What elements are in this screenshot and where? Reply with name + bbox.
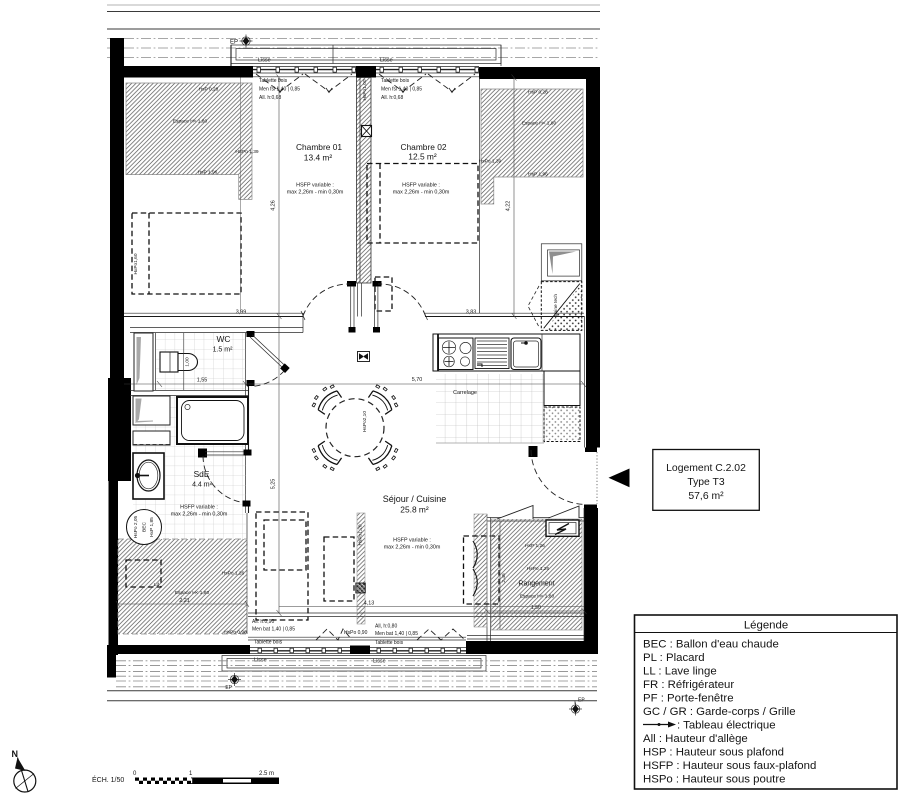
svg-text:HSFP : Hauteur sous faux-plafo: HSFP : Hauteur sous faux-plafond	[643, 760, 816, 772]
svg-text:1,55: 1,55	[197, 378, 208, 384]
svg-text:HsPo 0,90: HsPo 0,90	[344, 630, 368, 636]
svg-text:max 2,26m - min 0,30m: max 2,26m - min 0,30m	[171, 512, 228, 518]
svg-text:LL : Lave linge: LL : Lave linge	[643, 666, 717, 678]
svg-text:BEC: BEC	[142, 522, 148, 532]
svg-text:4,26: 4,26	[271, 200, 277, 211]
svg-text:HsP 0,28: HsP 0,28	[528, 90, 548, 96]
svg-text:HsPo 1,26: HsPo 1,26	[222, 571, 245, 577]
svg-text:BEC : Ballon d'eau chaude: BEC : Ballon d'eau chaude	[643, 639, 779, 651]
svg-text:Chambre 02: Chambre 02	[400, 142, 446, 152]
svg-text:Logement C.2.02: Logement C.2.02	[666, 463, 746, 474]
svg-text:gaine tech: gaine tech	[553, 294, 559, 316]
svg-text:3,83: 3,83	[466, 310, 477, 316]
svg-text:max 2,26m - min 0,30m: max 2,26m - min 0,30m	[287, 190, 344, 196]
svg-text:Espace H< 1,80: Espace H< 1,80	[175, 590, 210, 596]
svg-text:HsPo1,20: HsPo1,20	[358, 524, 364, 545]
svg-text:2,45: 2,45	[501, 573, 507, 583]
svg-text:4,13: 4,13	[364, 601, 375, 607]
svg-text:Ld: Ld	[154, 582, 160, 588]
svg-text:PF : Porte-fenêtre: PF : Porte-fenêtre	[643, 693, 734, 705]
svg-text:4.4 m²: 4.4 m²	[192, 482, 213, 489]
svg-text:5,25: 5,25	[271, 479, 277, 490]
svg-text:Espace H< 1,80: Espace H< 1,80	[520, 594, 555, 600]
svg-text:Tablette bois: Tablette bois	[254, 640, 283, 646]
svg-text:PL : Placard: PL : Placard	[643, 652, 705, 664]
svg-text:Rangement: Rangement	[518, 581, 554, 588]
svg-text:WC: WC	[217, 334, 231, 344]
svg-text:Espace H< 1,80: Espace H< 1,80	[522, 121, 557, 127]
svg-text:HsPo 1,39: HsPo 1,39	[479, 159, 502, 165]
svg-text:HSFP variable :: HSFP variable :	[180, 505, 218, 511]
svg-text:HxP 1,26: HxP 1,26	[525, 543, 545, 549]
svg-text:HsPo 1,26: HsPo 1,26	[527, 566, 550, 572]
svg-text:HsP 1,96: HsP 1,96	[198, 170, 218, 176]
svg-text:HsPo1,00: HsPo1,00	[362, 79, 368, 100]
svg-text:HSFP variable :: HSFP variable :	[402, 183, 440, 189]
svg-text:1,00: 1,00	[185, 357, 191, 367]
svg-text:Type T3: Type T3	[687, 477, 725, 488]
svg-text:1,50: 1,50	[531, 605, 541, 611]
svg-text:2,21: 2,21	[179, 598, 190, 604]
svg-text:HsPo2,10: HsPo2,10	[362, 411, 368, 432]
svg-text:HsPo 2,05: HsPo 2,05	[133, 515, 139, 538]
svg-text:EP: EP	[578, 698, 585, 704]
svg-text:EP: EP	[230, 40, 238, 46]
svg-text:Lisse: Lisse	[373, 659, 386, 665]
svg-text:HsP 1,96: HsP 1,96	[528, 172, 548, 178]
svg-text:Chambre 01: Chambre 01	[296, 142, 342, 152]
svg-text:HSFP variable :: HSFP variable :	[296, 183, 334, 189]
svg-text:All. h:0,90: All. h:0,90	[252, 619, 274, 625]
svg-text:HSFP variable :: HSFP variable :	[393, 538, 431, 544]
svg-text:12.5 m²: 12.5 m²	[408, 152, 437, 162]
svg-text:3,99: 3,99	[236, 310, 247, 316]
svg-text:HSPo 1,39: HSPo 1,39	[235, 149, 259, 155]
svg-text:Carrelage: Carrelage	[453, 390, 477, 396]
svg-text:Lisse: Lisse	[380, 58, 393, 64]
svg-text:HSPo : Hauteur sous poutre: HSPo : Hauteur sous poutre	[643, 774, 785, 786]
svg-text:max 2,26m - min 0,30m: max 2,26m - min 0,30m	[384, 545, 441, 551]
svg-text:All, h:0,80: All, h:0,80	[375, 624, 397, 630]
svg-text:25.8 m²: 25.8 m²	[400, 505, 429, 515]
svg-text:max 2,26m - min 0,30m: max 2,26m - min 0,30m	[393, 190, 450, 196]
svg-text:N: N	[12, 749, 19, 759]
svg-text:Men fsl 1,40 | 0,85: Men fsl 1,40 | 0,85	[259, 87, 300, 93]
svg-text:HsP 0,28: HsP 0,28	[199, 87, 219, 93]
svg-text:ÉCH. 1/50: ÉCH. 1/50	[92, 775, 124, 784]
svg-text:Lisse: Lisse	[258, 58, 271, 64]
svg-text:Men bat 1,40 | 0,85: Men bat 1,40 | 0,85	[375, 631, 418, 637]
svg-text:Légende: Légende	[744, 620, 788, 632]
svg-text:1.5 m²: 1.5 m²	[213, 347, 234, 354]
svg-text:HSP : Hauteur sous plafond: HSP : Hauteur sous plafond	[643, 747, 784, 759]
svg-text:GC / GR : Garde-corps / Grille: GC / GR : Garde-corps / Grille	[643, 706, 796, 718]
svg-text:Espace H< 1,80: Espace H< 1,80	[173, 119, 208, 125]
svg-text:Men fsl 1,40 | 0,85: Men fsl 1,40 | 0,85	[381, 87, 422, 93]
svg-text:Tablette bois: Tablette bois	[381, 78, 410, 84]
svg-text:SdE: SdE	[194, 469, 210, 479]
svg-text:All : Hauteur d'allège: All : Hauteur d'allège	[643, 733, 748, 745]
svg-text:5,70: 5,70	[412, 377, 423, 383]
svg-text:13.4 m²: 13.4 m²	[304, 153, 333, 163]
svg-text:HxP 1,85: HxP 1,85	[149, 517, 155, 537]
svg-text:All. h:0,68: All. h:0,68	[259, 95, 281, 101]
svg-text:2.5 m: 2.5 m	[259, 771, 274, 777]
svg-text:Tablette bois: Tablette bois	[259, 78, 288, 84]
svg-text:57,6 m²: 57,6 m²	[688, 491, 724, 502]
svg-text:HsPo 0,90: HsPo 0,90	[224, 630, 247, 636]
svg-text:Tablette bois: Tablette bois	[375, 640, 404, 646]
svg-text:Men bat 1,40 | 0,85: Men bat 1,40 | 0,85	[252, 627, 295, 633]
svg-text:EP: EP	[225, 685, 232, 691]
svg-text:FR : Réfrigérateur: FR : Réfrigérateur	[643, 679, 734, 691]
svg-text:: Tableau électrique: : Tableau électrique	[677, 720, 776, 732]
svg-text:HxPo1,60: HxPo1,60	[133, 253, 139, 274]
svg-text:4,22: 4,22	[506, 201, 512, 212]
svg-text:Séjour / Cuisine: Séjour / Cuisine	[383, 494, 447, 504]
svg-text:All. h:0,68: All. h:0,68	[381, 95, 403, 101]
